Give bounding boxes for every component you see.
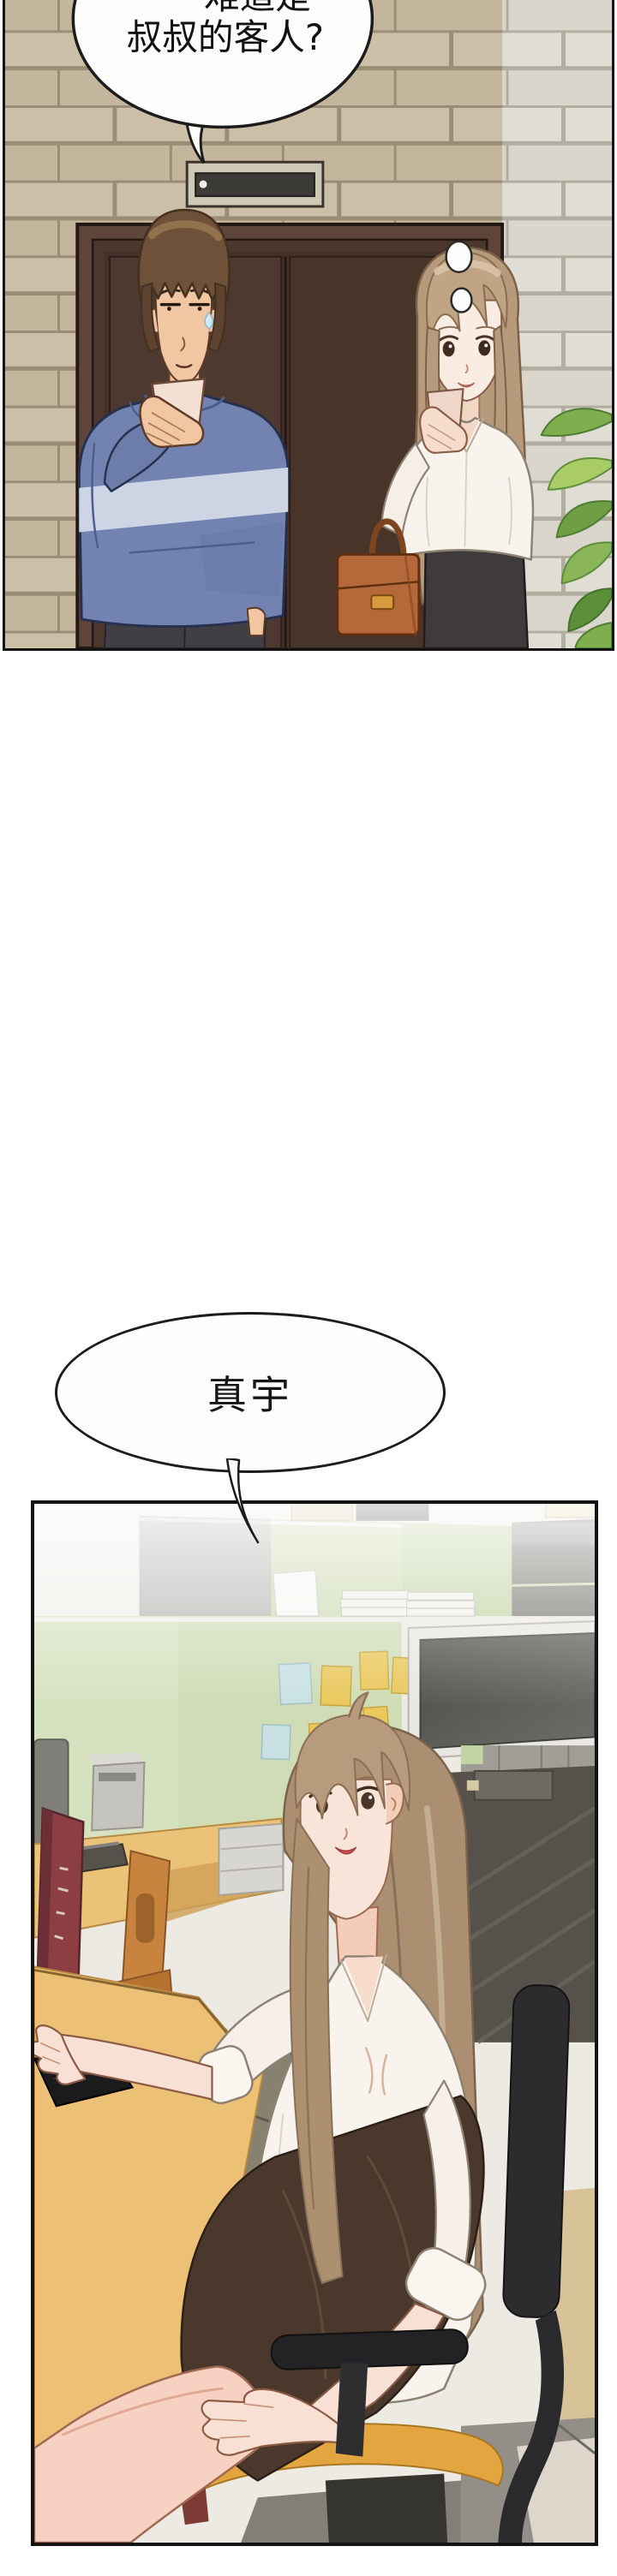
hallway-scene: 难道是 叔叔的客人?: [5, 0, 612, 648]
comic-panel-office: [31, 1500, 598, 2546]
speech-bubble-mid: 真宇: [55, 1312, 446, 1473]
plate-dot: [200, 181, 207, 188]
office-scene: [34, 1504, 595, 2543]
bubble-mid-text: 真宇: [207, 1364, 293, 1421]
man-hand-side: [248, 608, 266, 635]
white-box: [219, 1824, 283, 1895]
door-plate: [187, 162, 323, 206]
chair-base: [326, 2474, 447, 2543]
speech-bubble-mid-tail: [217, 1458, 268, 1551]
printer-box: [87, 1752, 144, 1830]
bubble-top-line2: 叔叔的客人?: [127, 16, 324, 58]
webtoon-page: 难道是 叔叔的客人? 真宇: [0, 0, 617, 2576]
bubble-top-line1: 难道是: [204, 0, 311, 17]
light-haze: [34, 1504, 595, 1708]
comic-panel-hallway: 难道是 叔叔的客人?: [3, 0, 614, 651]
bag-buckle: [371, 595, 393, 609]
